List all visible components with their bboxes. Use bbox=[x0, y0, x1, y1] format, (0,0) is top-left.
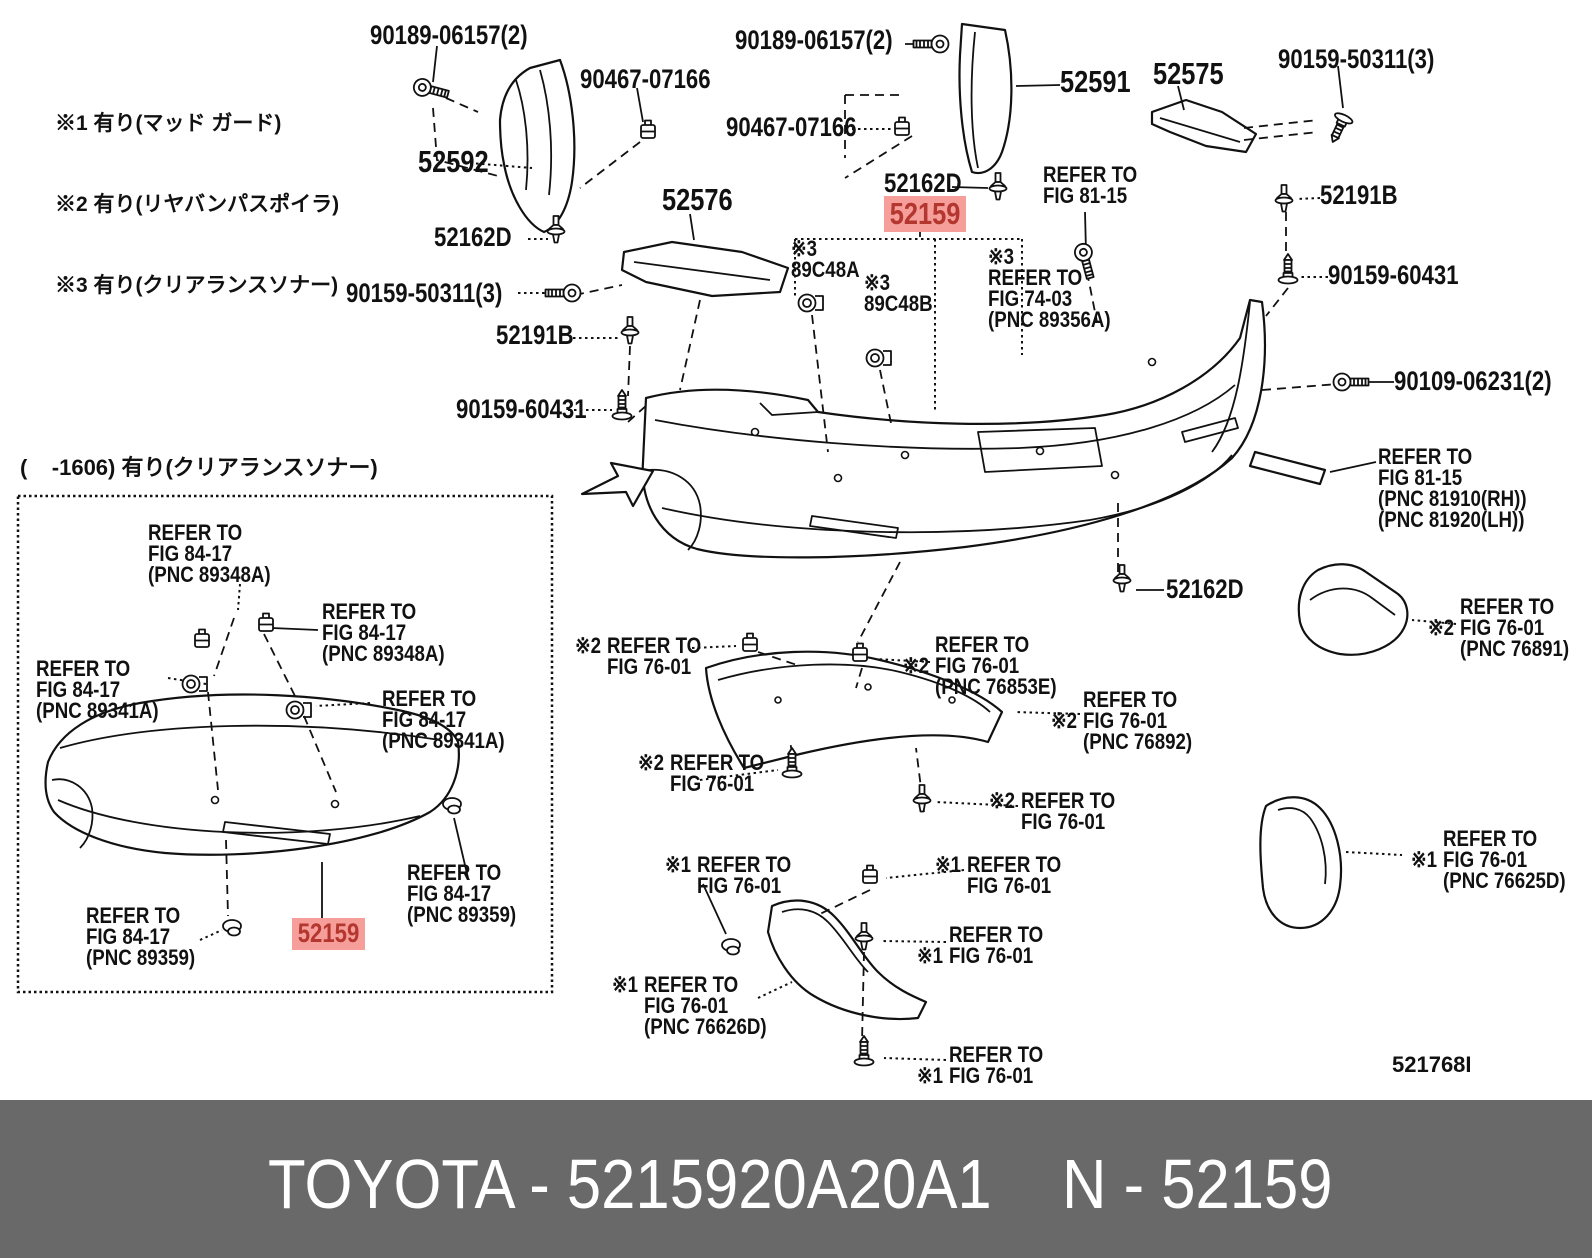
part-label-90159-50311-right: 90159-50311(3) bbox=[1278, 46, 1434, 73]
refer-label-fig81-15-pnc81910-81920: REFER TO FIG 81-15 (PNC 81910(RH)) (PNC … bbox=[1378, 446, 1527, 530]
legend-notes: ※1 有り(マッド ガード) ※2 有り(リヤバンパスポイラ) ※3 有り(クリ… bbox=[55, 56, 339, 353]
refer-label-fig84-17-pnc89359-b: REFER TO FIG 84-17 (PNC 89359) bbox=[407, 862, 516, 925]
note-mark-2: ※2 bbox=[1428, 617, 1460, 638]
clip-icon bbox=[641, 121, 655, 139]
note-mark-1: ※1 bbox=[917, 1065, 949, 1086]
clip-pin-icon bbox=[990, 173, 1007, 200]
refer-label-fig76-01-pnc76626D: ※1REFER TO FIG 76-01 (PNC 76626D) bbox=[644, 974, 767, 1037]
clip-icon bbox=[863, 866, 877, 884]
screw-icon bbox=[546, 285, 581, 302]
refer-label-fig76-01-c: ※2REFER TO FIG 76-01 bbox=[1021, 790, 1115, 832]
refer-label-fig76-01-pnc76625D: ※1REFER TO FIG 76-01 (PNC 76625D) bbox=[1443, 828, 1566, 891]
part-label-90189-06157-left: 90189-06157(2) bbox=[370, 22, 528, 49]
refer-label-fig76-01-a: ※2REFER TO FIG 76-01 bbox=[607, 635, 701, 677]
refer-label-fig81-15-top: REFER TO FIG 81-15 bbox=[1043, 164, 1137, 206]
part-label-52191B-right: 52191B bbox=[1320, 182, 1398, 209]
bolt-icon bbox=[914, 36, 949, 53]
refer-label-fig76-01-pnc76853E: ※2REFER TO FIG 76-01 (PNC 76853E) bbox=[935, 634, 1057, 697]
bracket-52591-drawing bbox=[960, 24, 1012, 173]
part-label-52162D-center: 52162D bbox=[884, 170, 962, 197]
highlighted-part-52159-inset: 52159 bbox=[292, 918, 365, 950]
part-label-89C48A: ※3 89C48A bbox=[791, 238, 860, 280]
reflector-strip-drawing bbox=[1250, 452, 1325, 484]
clip-pin-icon bbox=[1276, 185, 1293, 212]
part-label-52575: 52575 bbox=[1153, 58, 1224, 89]
part-label-52592: 52592 bbox=[418, 146, 489, 177]
part-label-52191B-left: 52191B bbox=[496, 322, 574, 349]
grommet-icon bbox=[443, 798, 461, 814]
note-mark-1: ※1 bbox=[612, 974, 644, 995]
corner-cover-drawing bbox=[1299, 564, 1408, 655]
note-mark-1: ※1 bbox=[917, 945, 949, 966]
rear-bumper-drawing bbox=[643, 300, 1265, 557]
diagram-code: 521768I bbox=[1392, 1052, 1472, 1078]
part-label-90159-60431-left: 90159-60431 bbox=[456, 396, 587, 423]
part-label-90467-07166-center: 90467-07166 bbox=[726, 114, 857, 141]
sonar-sensor-icon bbox=[799, 295, 824, 312]
part-label-90189-06157-center: 90189-06157(2) bbox=[735, 27, 893, 54]
note-mark-1: ※1 bbox=[935, 854, 967, 875]
inset-header: ( -1606) 有り(クリアランスソナー) bbox=[20, 450, 378, 482]
refer-label-fig84-17-pnc89341A-b: REFER TO FIG 84-17 (PNC 89341A) bbox=[382, 688, 505, 751]
part-label-52162D-left: 52162D bbox=[434, 224, 512, 251]
grommet-icon bbox=[223, 920, 241, 936]
clip-icon bbox=[853, 644, 867, 662]
rail-52576-drawing bbox=[622, 242, 788, 296]
footer-pnc: N - 52159 bbox=[1062, 1144, 1333, 1224]
refer-label-fig84-17-pnc89359-a: REFER TO FIG 84-17 (PNC 89359) bbox=[86, 905, 195, 968]
refer-label-fig76-01-g: ※1REFER TO FIG 76-01 bbox=[949, 1044, 1043, 1086]
screw-icon bbox=[1324, 111, 1354, 146]
screw-icon bbox=[855, 1036, 874, 1066]
note-mark-2: ※2 bbox=[989, 790, 1021, 811]
note-mark-2: ※2 bbox=[638, 752, 670, 773]
refer-label-fig84-17-pnc89348A-a: REFER TO FIG 84-17 (PNC 89348A) bbox=[148, 522, 271, 585]
part-label-90159-50311-left: 90159-50311(3) bbox=[346, 280, 502, 307]
legend-note-2: ※2 有り(リヤバンパスポイラ) bbox=[55, 191, 339, 218]
note-mark-2: ※2 bbox=[1051, 710, 1083, 731]
clip-icon bbox=[195, 630, 209, 648]
bolt-icon bbox=[1334, 374, 1369, 391]
mud-flap-center-drawing bbox=[768, 901, 926, 1019]
note-mark-1: ※1 bbox=[1411, 849, 1443, 870]
refer-label-fig74-03-pnc89356A: ※3 REFER TO FIG 74-03 (PNC 89356A) bbox=[988, 246, 1111, 330]
footer-bar: TOYOTA - 5215920A20A1 N - 52159 bbox=[0, 1100, 1592, 1258]
refer-label-fig76-01-f: ※1REFER TO FIG 76-01 bbox=[949, 924, 1043, 966]
refer-label-fig84-17-pnc89348A-b: REFER TO FIG 84-17 (PNC 89348A) bbox=[322, 601, 445, 664]
refer-label-fig84-17-pnc89341A-a: REFER TO FIG 84-17 (PNC 89341A) bbox=[36, 658, 159, 721]
footer-part-number: TOYOTA - 5215920A20A1 bbox=[268, 1144, 992, 1224]
mud-guard-right-drawing bbox=[1260, 797, 1341, 928]
clip-pin-icon bbox=[914, 785, 931, 812]
direction-arrow-icon bbox=[582, 463, 653, 506]
clip-icon bbox=[259, 614, 273, 632]
parts-diagram-page: ※1 有り(マッド ガード) ※2 有り(リヤバンパスポイラ) ※3 有り(クリ… bbox=[0, 0, 1592, 1258]
highlighted-part-52159-top: 52159 bbox=[884, 196, 966, 232]
bolt-icon bbox=[412, 77, 450, 102]
note-mark-1: ※1 bbox=[665, 854, 697, 875]
part-label-90159-60431-right: 90159-60431 bbox=[1328, 262, 1459, 289]
clip-icon bbox=[895, 118, 909, 136]
note-mark-2: ※2 bbox=[903, 655, 935, 676]
part-label-90467-07166-left: 90467-07166 bbox=[580, 66, 711, 93]
grommet-icon bbox=[722, 939, 740, 955]
sonar-sensor-icon bbox=[867, 350, 892, 367]
part-label-52162D-bottom: 52162D bbox=[1166, 576, 1244, 603]
part-label-52576: 52576 bbox=[662, 184, 733, 215]
rail-52575-drawing bbox=[1152, 100, 1256, 152]
part-label-90109-06231: 90109-06231(2) bbox=[1394, 368, 1552, 395]
clip-pin-icon bbox=[1114, 565, 1131, 592]
sonar-sensor-icon bbox=[183, 676, 208, 693]
refer-label-fig76-01-d: ※1REFER TO FIG 76-01 bbox=[697, 854, 791, 896]
dashed-construction-lines bbox=[208, 95, 1338, 1042]
screw-icon bbox=[1279, 254, 1298, 284]
bracket-52592-drawing bbox=[500, 60, 574, 232]
clip-icon bbox=[743, 634, 757, 652]
part-label-89C48B: ※3 89C48B bbox=[864, 272, 933, 314]
legend-note-3: ※3 有り(クリアランスソナー) bbox=[55, 272, 339, 299]
note-mark-2: ※2 bbox=[575, 635, 607, 656]
refer-label-fig76-01-e: ※1REFER TO FIG 76-01 bbox=[967, 854, 1061, 896]
refer-label-fig76-01-b: ※2REFER TO FIG 76-01 bbox=[670, 752, 764, 794]
refer-label-fig76-01-pnc76892: ※2REFER TO FIG 76-01 (PNC 76892) bbox=[1083, 689, 1192, 752]
clip-pin-icon bbox=[622, 317, 639, 344]
part-label-52591: 52591 bbox=[1060, 66, 1131, 97]
refer-label-fig76-01-pnc76891: ※2REFER TO FIG 76-01 (PNC 76891) bbox=[1460, 596, 1569, 659]
legend-note-1: ※1 有り(マッド ガード) bbox=[55, 110, 339, 137]
